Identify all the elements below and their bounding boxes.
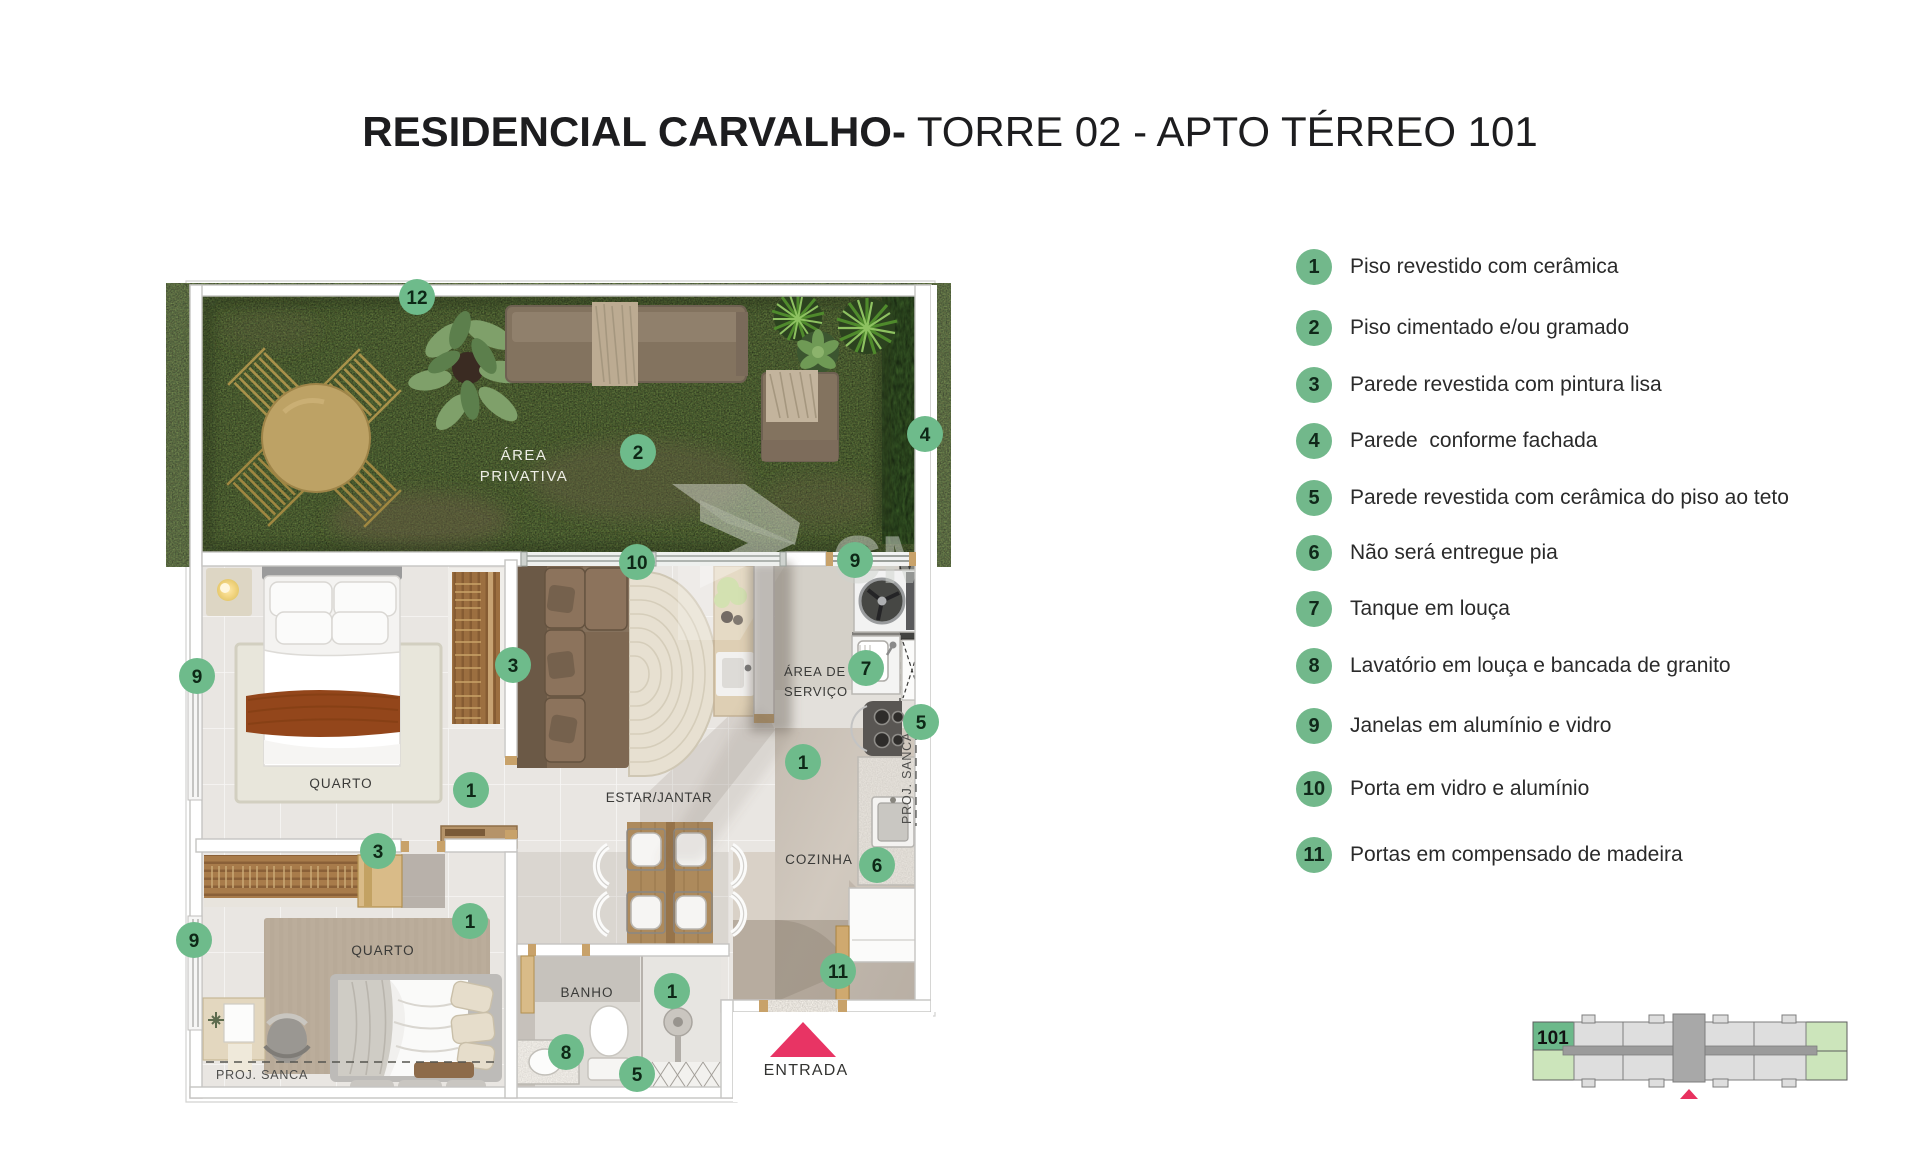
svg-text:6: 6 xyxy=(872,856,883,877)
svg-text:SERVIÇO: SERVIÇO xyxy=(784,684,848,699)
svg-text:10: 10 xyxy=(626,553,647,574)
svg-text:5: 5 xyxy=(916,713,927,734)
svg-text:11: 11 xyxy=(828,962,849,983)
svg-text:QUARTO: QUARTO xyxy=(309,776,372,791)
svg-text:QUARTO: QUARTO xyxy=(351,943,414,958)
svg-text:12: 12 xyxy=(406,288,427,309)
svg-text:8: 8 xyxy=(561,1043,572,1064)
svg-text:PROJ. SANCA: PROJ. SANCA xyxy=(900,732,914,824)
svg-text:COZINHA: COZINHA xyxy=(785,852,853,867)
svg-text:BANHO: BANHO xyxy=(560,985,613,1000)
svg-text:1: 1 xyxy=(798,753,809,774)
svg-text:9: 9 xyxy=(850,551,861,572)
svg-text:5: 5 xyxy=(632,1065,643,1086)
svg-text:ESTAR/JANTAR: ESTAR/JANTAR xyxy=(606,790,712,805)
svg-text:ÁREA: ÁREA xyxy=(501,447,548,464)
svg-text:ÁREA DE: ÁREA DE xyxy=(784,664,846,679)
svg-text:4: 4 xyxy=(920,425,931,446)
svg-text:1: 1 xyxy=(667,982,678,1003)
svg-text:PROJ. SANCA: PROJ. SANCA xyxy=(216,1068,308,1082)
svg-text:3: 3 xyxy=(508,656,519,677)
svg-text:7: 7 xyxy=(861,659,872,680)
svg-text:1: 1 xyxy=(465,912,476,933)
svg-text:9: 9 xyxy=(192,667,203,688)
svg-text:1: 1 xyxy=(466,781,477,802)
svg-text:2: 2 xyxy=(633,443,644,464)
svg-text:3: 3 xyxy=(373,842,384,863)
svg-text:ENTRADA: ENTRADA xyxy=(764,1062,849,1079)
svg-text:9: 9 xyxy=(189,931,200,952)
svg-text:PRIVATIVA: PRIVATIVA xyxy=(480,468,569,485)
